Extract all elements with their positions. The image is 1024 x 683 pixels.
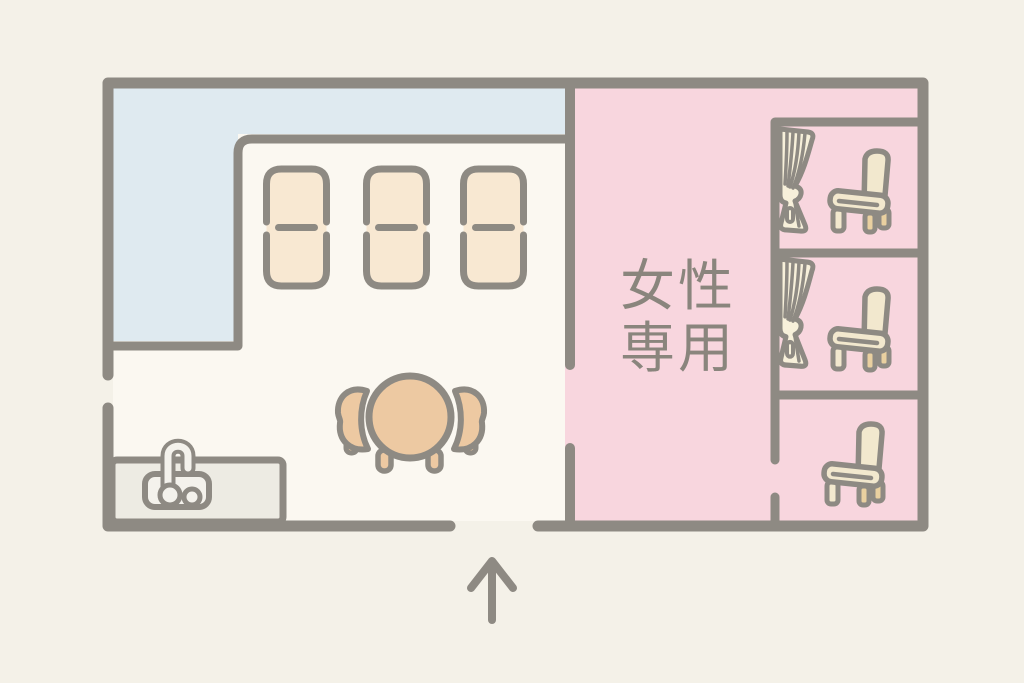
bed-2: [367, 169, 427, 286]
bed-3: [464, 169, 524, 286]
table-chair-right: [454, 390, 484, 453]
sink-unit: [112, 446, 283, 522]
bed-row: [267, 169, 524, 286]
women-only-label-line1: 女性: [620, 255, 736, 317]
women-only-label-line2: 専用: [620, 317, 736, 379]
entrance-arrow-icon: [471, 561, 513, 620]
table-chair-left: [338, 390, 368, 453]
round-table: [369, 376, 451, 458]
bed-1: [267, 169, 327, 286]
floor-plan-canvas: 女性 専用: [0, 0, 1024, 683]
women-only-label: 女性 専用: [620, 255, 736, 379]
floor-plan: 女性 専用: [0, 0, 1024, 683]
